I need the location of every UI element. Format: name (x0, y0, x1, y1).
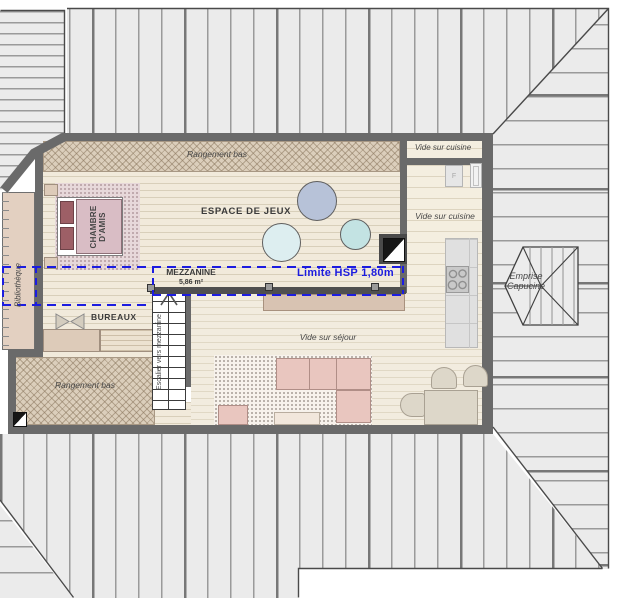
oven-door (473, 166, 479, 186)
hsp-limit-line (35, 266, 37, 306)
wall-stairs-right (186, 289, 191, 387)
wall-bottom (8, 425, 493, 434)
label-bureaux: BUREAUX (91, 313, 137, 322)
hsp-limit-line (402, 266, 404, 294)
fridge-letter: F (452, 173, 456, 180)
wall-left-mid (35, 149, 43, 357)
label-escalier: Escalier vers mezzanine (156, 293, 164, 411)
label-mezzanine: MEZZANINE (158, 268, 224, 277)
kitchen-counter (445, 238, 478, 348)
play-pouf-blue (297, 181, 337, 221)
hsp-limit-line (152, 266, 154, 294)
rangement-bas-bottom-zone (12, 357, 155, 425)
roof-window-icon-small (13, 412, 27, 427)
label-vide-sur-cuisine-main: Vide sur cuisine (405, 212, 485, 221)
kitchen-counter-divider (469, 238, 470, 348)
wall-right (482, 133, 493, 433)
coffee-table (274, 412, 320, 425)
label-vide-sur-sejour: Vide sur séjour (288, 333, 368, 342)
play-pouf-pale (262, 223, 301, 262)
desk (43, 329, 100, 352)
sideboard-below (263, 294, 405, 311)
wall-top (62, 133, 493, 141)
stairs-center-line (168, 289, 169, 410)
label-limite-hsp: Limite HSP 1,80m (297, 267, 394, 279)
label-vide-sur-cuisine-box: Vide sur cuisine (403, 144, 483, 153)
label-bibliotheque: Bibliothèque (15, 240, 24, 330)
hsp-limit-line (2, 266, 4, 306)
dining-chair (431, 367, 457, 389)
floor-plan-canvas: CHAMBRE D'AMIS Bibliothèque BUREAUX Esca… (0, 0, 644, 598)
label-rangement-bas-top: Rangement bas (171, 150, 263, 159)
label-espace-de-jeux: ESPACE DE JEUX (200, 207, 292, 217)
sofa-back (276, 358, 371, 390)
dining-chair (400, 393, 425, 417)
cooktop (446, 266, 469, 293)
nightstand (44, 184, 58, 196)
mezzanine-railing (150, 287, 406, 294)
bed-pillow (60, 201, 74, 224)
sofa-chaise (336, 390, 371, 423)
railing-post (371, 283, 379, 291)
dining-table (424, 390, 478, 425)
label-emprise-capucine: Emprise Capucine (498, 272, 554, 292)
oven (470, 163, 482, 188)
hsp-limit-line (152, 294, 404, 296)
label-chambre-damis: CHAMBRE D'AMIS (90, 200, 108, 254)
hsp-limit-line (2, 304, 152, 306)
label-rangement-bas-bottom: Rangement bas (39, 381, 131, 390)
sofa-cushion-line (309, 358, 310, 390)
pouf (218, 405, 248, 425)
railing-post (265, 283, 273, 291)
play-pouf-teal (340, 219, 371, 250)
fridge: F (445, 165, 463, 187)
dining-chair (463, 365, 488, 387)
roof-window-icon (383, 238, 405, 262)
sofa-cushion-line (336, 358, 337, 390)
label-mezzanine-surface: 5,86 m² (158, 279, 224, 287)
bed-pillow (60, 227, 74, 250)
desk-return (100, 329, 153, 352)
